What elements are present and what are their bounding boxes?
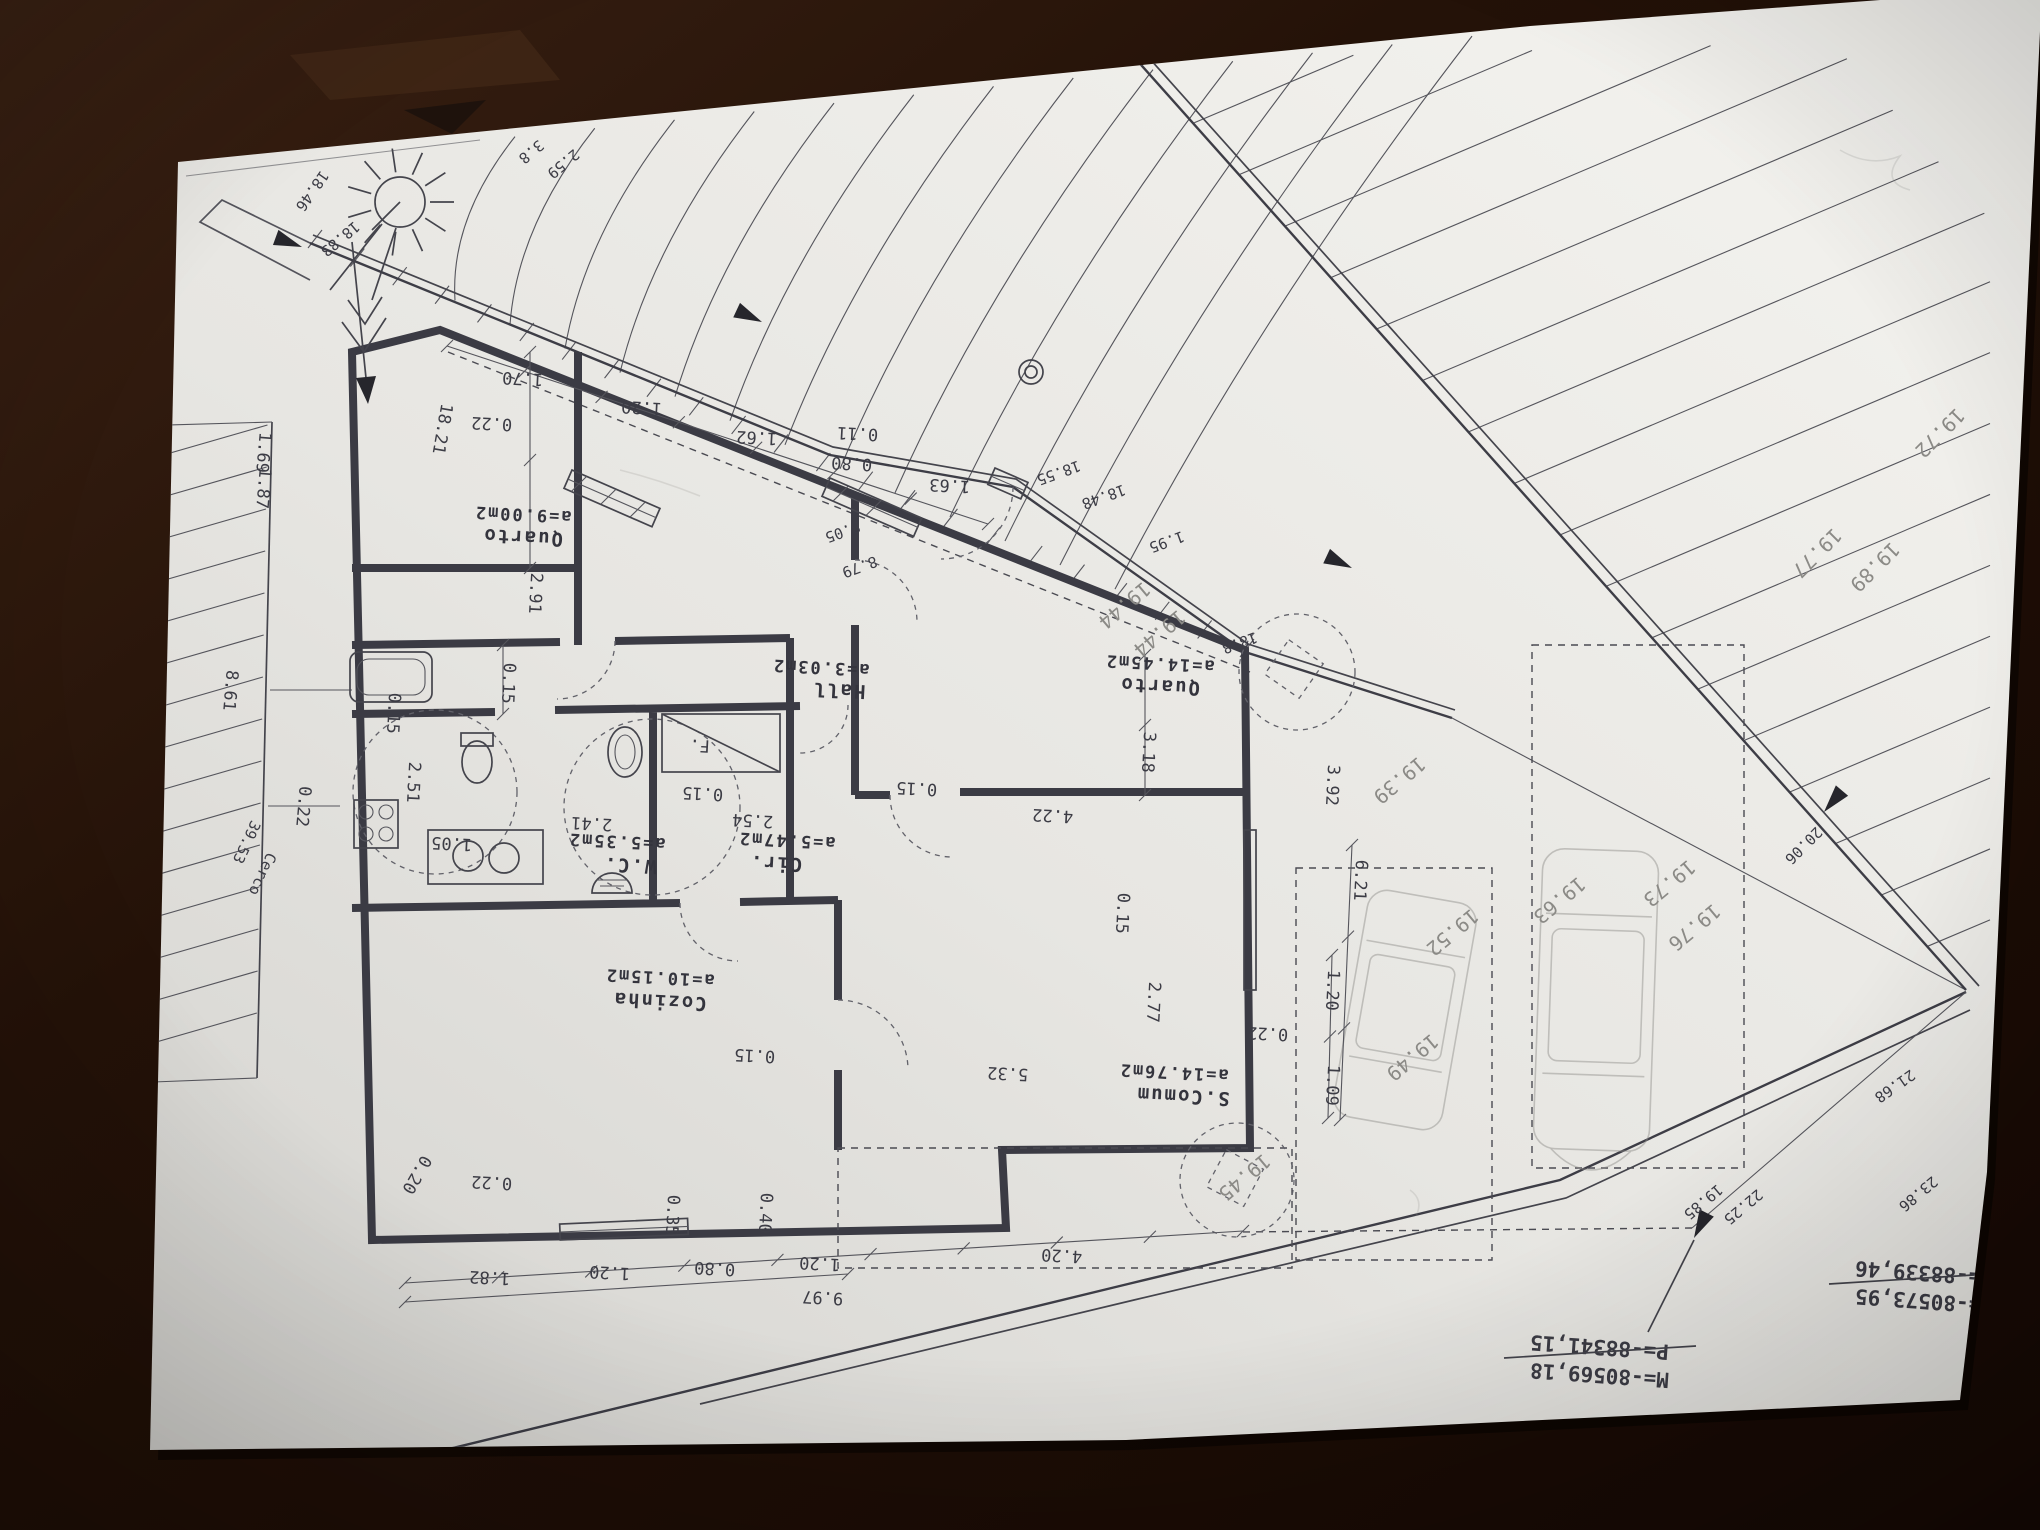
photo-of-floor-plan: 1.701.201.620.220.110.801.630.152.412.54… [0,0,2040,1530]
photo-vignette [0,0,2040,1530]
floor-plan-sheet: 1.701.201.620.220.110.801.630.152.412.54… [0,0,2040,1530]
